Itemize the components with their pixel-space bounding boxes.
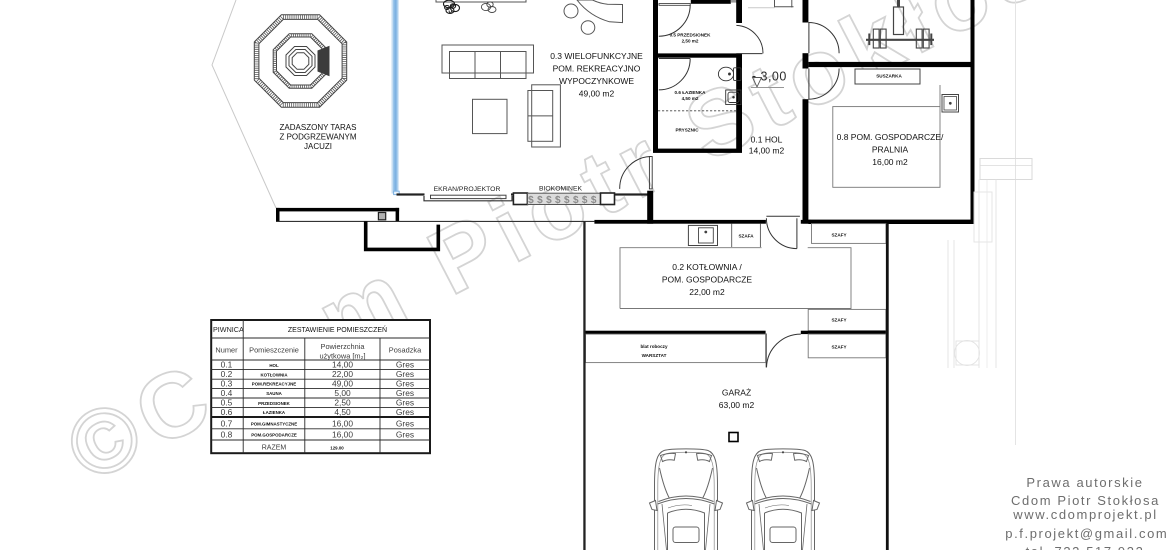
- svg-text:POM. REKREACYJNO: POM. REKREACYJNO: [553, 64, 641, 74]
- svg-text:KOTŁOWNIA: KOTŁOWNIA: [260, 372, 288, 377]
- svg-text:PIWNICA: PIWNICA: [213, 325, 244, 334]
- svg-text:SAUNA: SAUNA: [266, 391, 282, 396]
- svg-text:0.6: 0.6: [221, 407, 233, 417]
- svg-text:POM.GIMNASTYCZNE: POM.GIMNASTYCZNE: [251, 422, 297, 427]
- svg-text:14,00: 14,00: [332, 360, 353, 370]
- svg-text:16,00: 16,00: [332, 430, 353, 440]
- svg-text:0.8 POM. GOSPODARCZE/: 0.8 POM. GOSPODARCZE/: [837, 132, 944, 142]
- svg-text:SZAFY: SZAFY: [831, 344, 846, 349]
- svg-text:SZAFY: SZAFY: [831, 232, 846, 237]
- svg-text:4,50: 4,50: [334, 407, 351, 417]
- svg-text:SUSZARKA: SUSZARKA: [876, 74, 902, 79]
- svg-text:EKRAN/PROJEKTOR: EKRAN/PROJEKTOR: [434, 186, 501, 193]
- svg-text:Gres: Gres: [396, 360, 414, 370]
- svg-text:ZESTAWIENIE POMIESZCZEŃ: ZESTAWIENIE POMIESZCZEŃ: [288, 325, 387, 334]
- svg-text:Gres: Gres: [396, 407, 414, 417]
- svg-text:POM.GOSPODARCZE: POM.GOSPODARCZE: [251, 433, 297, 438]
- svg-text:Gres: Gres: [396, 418, 414, 428]
- svg-text:22,00 m2: 22,00 m2: [689, 287, 725, 297]
- svg-text:16,00: 16,00: [332, 418, 353, 428]
- svg-text:Cdom Piotr Stokłosa: Cdom Piotr Stokłosa: [1011, 493, 1160, 508]
- svg-text:www.cdomprojekt.pl: www.cdomprojekt.pl: [1012, 507, 1157, 522]
- svg-text:JACUZI: JACUZI: [304, 142, 332, 151]
- svg-text:PRYSZNIC: PRYSZNIC: [675, 128, 699, 133]
- svg-text:Z PODGRZEWANYM: Z PODGRZEWANYM: [279, 133, 356, 142]
- svg-text:Numer: Numer: [215, 346, 238, 355]
- svg-text:RAZEM: RAZEM: [262, 445, 287, 452]
- svg-text:WARSZTAT: WARSZTAT: [642, 353, 667, 358]
- svg-text:2,50 m2: 2,50 m2: [682, 39, 699, 44]
- svg-text:tel. 732 517 932: tel. 732 517 932: [1026, 544, 1145, 550]
- svg-text:3,00: 3,00: [761, 70, 787, 84]
- svg-text:129.00: 129.00: [330, 445, 344, 450]
- svg-text:0.6 ŁAZIENKA: 0.6 ŁAZIENKA: [675, 90, 707, 95]
- svg-text:POM.REKREACYJNE: POM.REKREACYJNE: [252, 382, 296, 387]
- svg-text:0.2 KOTŁOWNIA /: 0.2 KOTŁOWNIA /: [672, 262, 742, 272]
- svg-text:ŁAZIENKA: ŁAZIENKA: [263, 410, 286, 415]
- svg-text:0.7: 0.7: [221, 418, 233, 428]
- svg-text:blat roboczy: blat roboczy: [640, 344, 668, 349]
- svg-text:Pomieszczenie: Pomieszczenie: [249, 346, 299, 355]
- svg-text:Gres: Gres: [396, 430, 414, 440]
- svg-text:49,00 m2: 49,00 m2: [579, 89, 615, 99]
- svg-text:BIOKOMINEK: BIOKOMINEK: [539, 186, 583, 193]
- svg-text:PRALNIA: PRALNIA: [872, 145, 909, 155]
- svg-text:PRZEDSIONEK: PRZEDSIONEK: [258, 401, 291, 406]
- svg-text:0.3: 0.3: [221, 378, 233, 388]
- svg-text:0.4: 0.4: [221, 388, 233, 398]
- svg-text:16,00 m2: 16,00 m2: [872, 157, 908, 167]
- svg-text:63,00 m2: 63,00 m2: [719, 400, 755, 410]
- svg-text:49,00: 49,00: [332, 378, 353, 388]
- svg-text:0.1: 0.1: [221, 360, 233, 370]
- svg-text:SZAFY: SZAFY: [831, 318, 846, 323]
- svg-text:ZADASZONY TARAS: ZADASZONY TARAS: [280, 123, 357, 132]
- svg-text:0.8: 0.8: [221, 430, 233, 440]
- svg-text:Prawa autorskie: Prawa autorskie: [1026, 475, 1143, 490]
- svg-text:0.1 HOL: 0.1 HOL: [751, 135, 783, 145]
- svg-text:GARAŻ: GARAŻ: [722, 388, 751, 398]
- svg-text:POM. GOSPODARCZE: POM. GOSPODARCZE: [662, 275, 753, 285]
- svg-text:SZAFA: SZAFA: [738, 233, 754, 238]
- svg-text:14,00 m2: 14,00 m2: [749, 146, 785, 156]
- svg-text:0.3 WIELOFUNKCYJNE: 0.3 WIELOFUNKCYJNE: [550, 51, 643, 61]
- svg-text:Gres: Gres: [396, 388, 414, 398]
- svg-text:WYPOCZYNKOWE: WYPOCZYNKOWE: [559, 76, 634, 86]
- svg-text:Gres: Gres: [396, 378, 414, 388]
- svg-text:HOL: HOL: [269, 363, 279, 368]
- svg-text:5,00: 5,00: [334, 388, 351, 398]
- svg-text:$$$$$$$$: $$$$$$$$: [528, 195, 600, 206]
- svg-text:Posadzka: Posadzka: [389, 346, 422, 355]
- svg-text:p.f.projekt@gmail.com: p.f.projekt@gmail.com: [1005, 526, 1168, 541]
- svg-text:Powierzchnia: Powierzchnia: [321, 342, 366, 351]
- svg-text:4,50 m2: 4,50 m2: [682, 96, 699, 101]
- svg-text:0.5 PRZEDSIONEK: 0.5 PRZEDSIONEK: [670, 33, 712, 38]
